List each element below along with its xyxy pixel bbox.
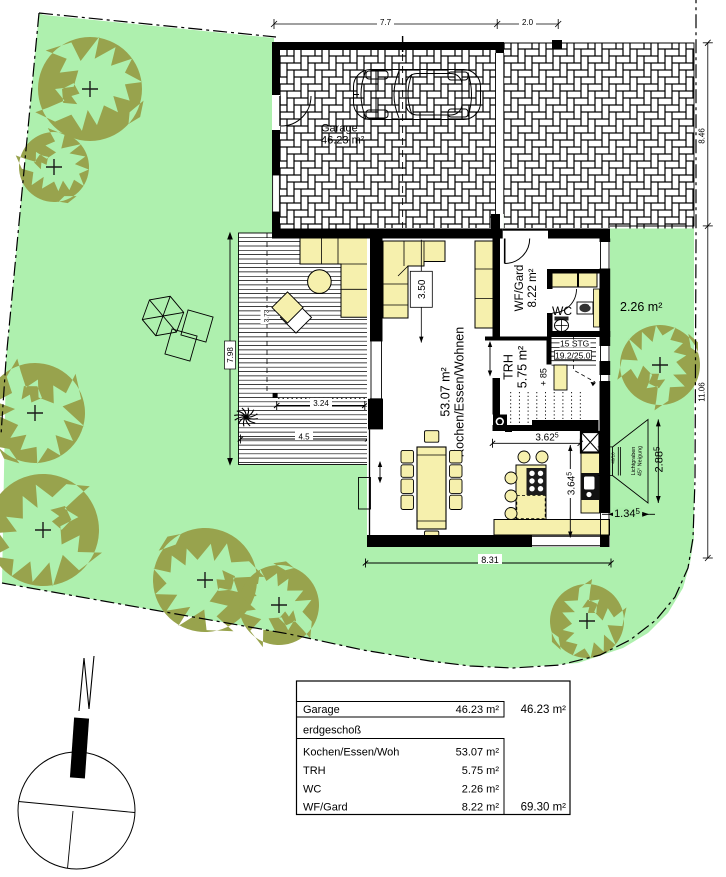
svg-text:Kochen/Essen/Wohnen: Kochen/Essen/Wohnen — [453, 327, 467, 457]
svg-text:2.0: 2.0 — [522, 18, 534, 27]
svg-text:53.07 m²: 53.07 m² — [439, 367, 453, 416]
svg-text:+ 85: + 85 — [539, 368, 549, 386]
svg-text:15 STG: 15 STG — [560, 339, 589, 349]
svg-text:69.30 m²: 69.30 m² — [521, 802, 567, 814]
svg-text:4.5: 4.5 — [298, 433, 310, 442]
svg-text:46.23 m²: 46.23 m² — [456, 704, 500, 716]
svg-text:Kochen/Essen/Woh: Kochen/Essen/Woh — [303, 747, 399, 759]
svg-text:40/10: 40/10 — [611, 452, 616, 464]
svg-text:2.26 m²: 2.26 m² — [620, 300, 662, 314]
svg-text:53.07 m²: 53.07 m² — [456, 747, 500, 759]
svg-text:2.26 m²: 2.26 m² — [462, 784, 500, 796]
svg-text:3.73: 3.73 — [264, 309, 271, 322]
svg-text:Garage: Garage — [303, 704, 340, 716]
svg-text:7.98: 7.98 — [226, 347, 235, 363]
svg-text:7.7: 7.7 — [380, 18, 392, 27]
svg-text:WF/Gard: WF/Gard — [303, 802, 348, 814]
svg-text:Lichtgraben: Lichtgraben — [631, 447, 637, 476]
svg-text:8.22 m²: 8.22 m² — [462, 802, 500, 814]
svg-text:Garage: Garage — [321, 123, 358, 135]
svg-text:WF/Gard: WF/Gard — [514, 265, 526, 312]
svg-text:WC: WC — [303, 784, 321, 796]
svg-text:46.23 m²: 46.23 m² — [521, 704, 567, 716]
svg-text:3.50: 3.50 — [417, 279, 428, 299]
svg-text:TRH: TRH — [303, 765, 326, 777]
svg-text:11.06: 11.06 — [698, 382, 707, 402]
svg-text:19.2/25.0: 19.2/25.0 — [555, 351, 591, 361]
svg-text:8.22 m²: 8.22 m² — [527, 268, 539, 307]
svg-text:8.46: 8.46 — [698, 128, 707, 144]
svg-text:5.75 m²: 5.75 m² — [516, 346, 530, 388]
svg-text:45° Neigung: 45° Neigung — [638, 446, 644, 476]
svg-text:8.31: 8.31 — [481, 555, 499, 565]
svg-text:5.75 m²: 5.75 m² — [462, 765, 500, 777]
svg-text:46.23 m²: 46.23 m² — [321, 135, 365, 147]
svg-text:TRH: TRH — [502, 354, 516, 380]
svg-text:3.24: 3.24 — [313, 399, 329, 408]
svg-text:erdgeschoß: erdgeschoß — [303, 725, 361, 737]
